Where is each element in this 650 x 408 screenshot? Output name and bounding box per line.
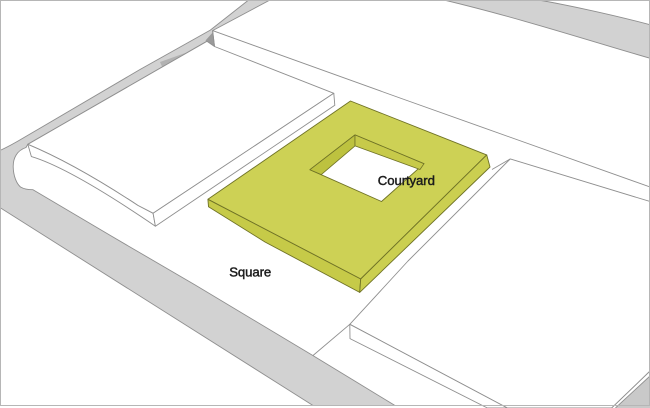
svg-text:Square: Square bbox=[229, 264, 271, 279]
svg-text:Courtyard: Courtyard bbox=[378, 173, 435, 188]
